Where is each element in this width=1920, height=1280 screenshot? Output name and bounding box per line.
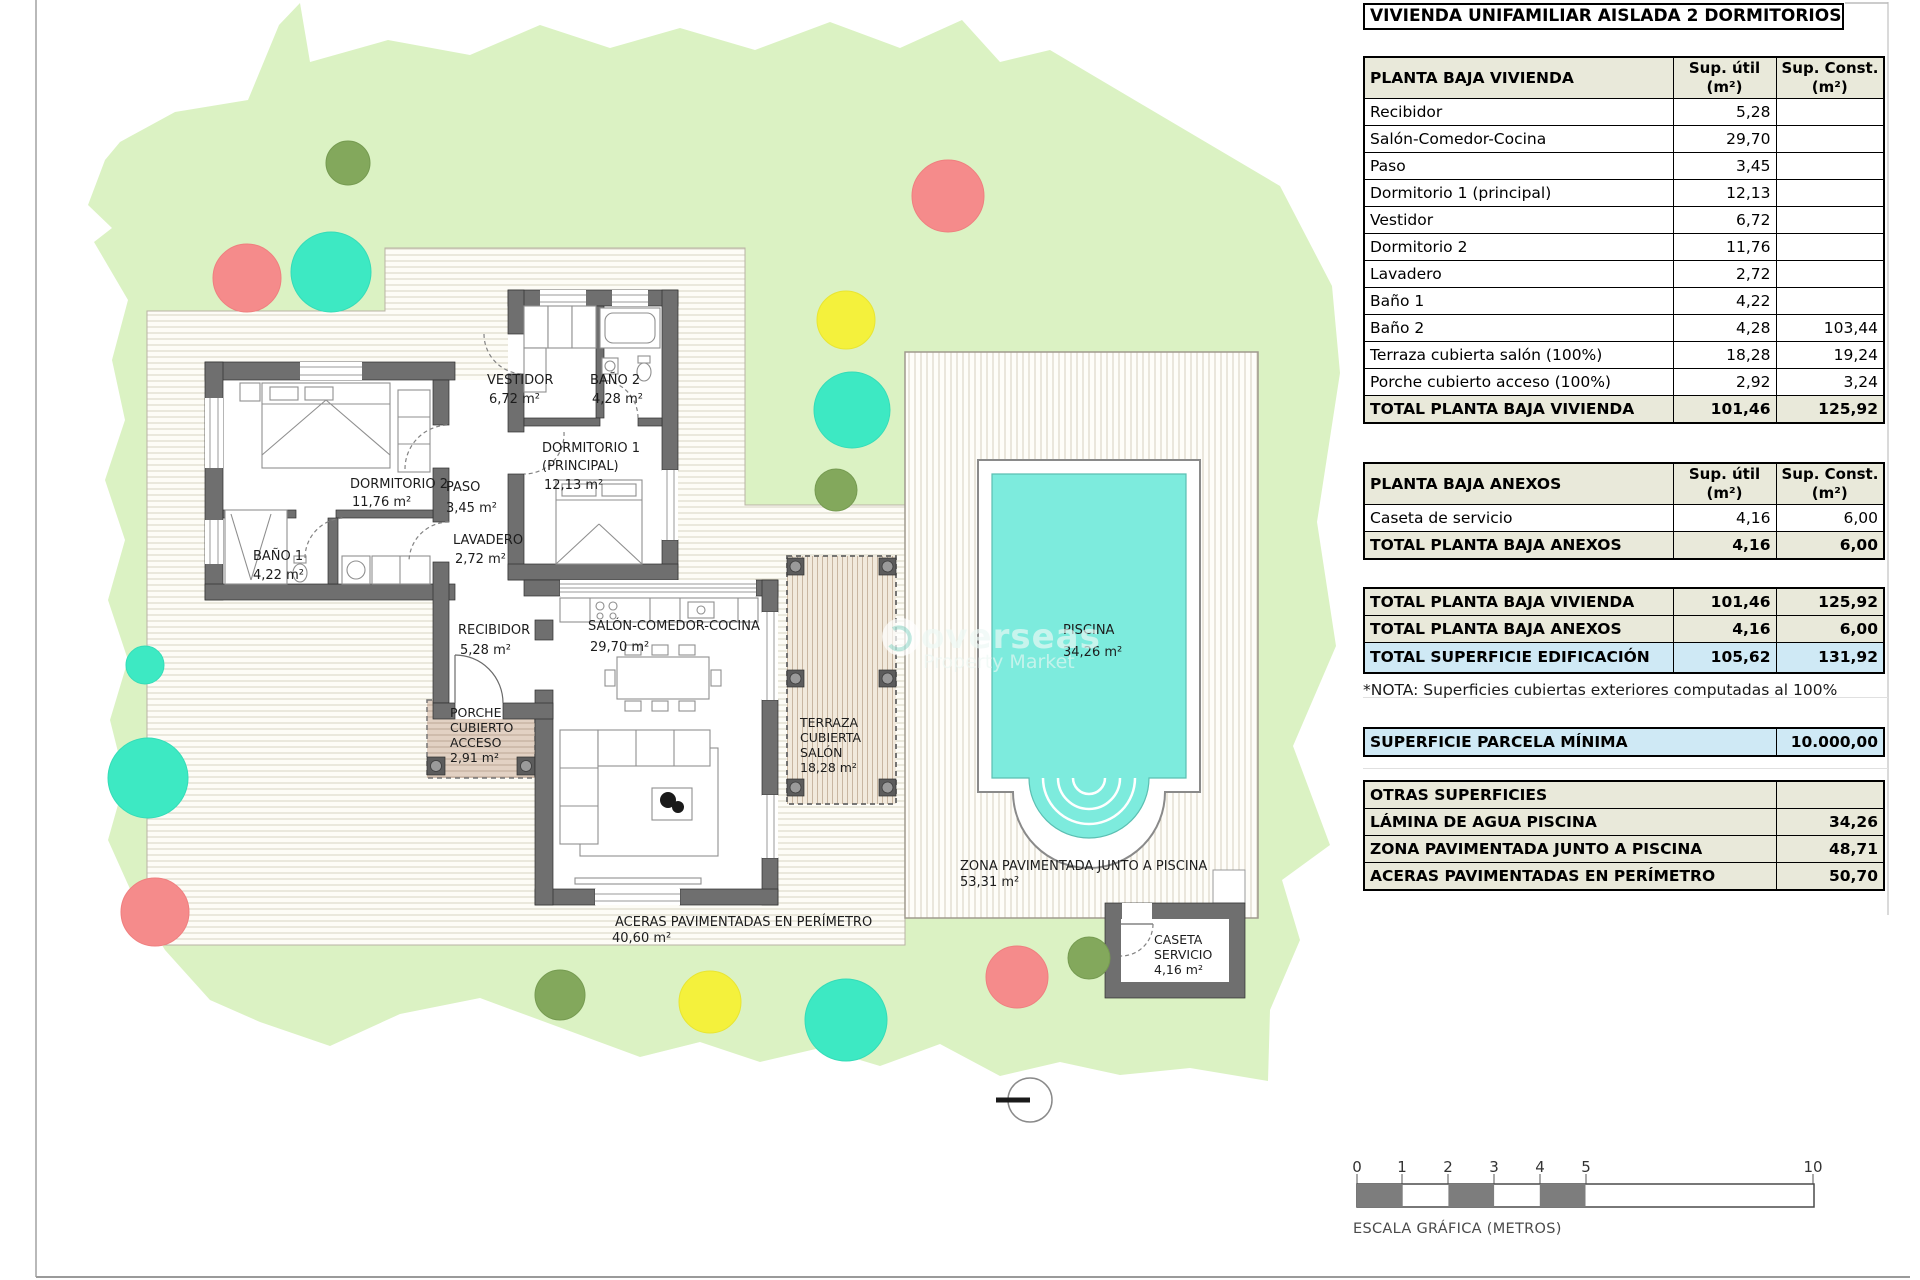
table-row: Lavadero2,72	[1364, 261, 1884, 288]
room-label: PASO	[446, 480, 480, 495]
table-row: LÁMINA DE AGUA PISCINA34,26	[1364, 809, 1884, 836]
site-label: CASETA	[1154, 932, 1203, 947]
tree-icon	[679, 971, 741, 1033]
table-row: Dormitorio 1 (principal)12,13	[1364, 180, 1884, 207]
col-header-const: Sup. Const.(m²)	[1776, 463, 1884, 505]
table-row: Caseta de servicio4,166,00	[1364, 505, 1884, 532]
room-label: DORMITORIO 1	[542, 441, 640, 456]
tree-icon	[121, 878, 189, 946]
scale-tick-label: 1	[1397, 1158, 1407, 1176]
tree-icon	[213, 244, 281, 312]
site-label: SERVICIO	[1154, 947, 1212, 962]
table-total-row: TOTAL PLANTA BAJA VIVIENDA101,46125,92	[1364, 396, 1884, 424]
room-area: 2,72 m²	[455, 552, 506, 567]
table-total-row: TOTAL PLANTA BAJA ANEXOS4,166,00	[1364, 616, 1884, 643]
col-header-util: Sup. útil(m²)	[1673, 57, 1776, 99]
room-label: (PRINCIPAL)	[542, 459, 619, 474]
watermark-text: Property Market	[923, 651, 1075, 673]
table-row: Paso3,45	[1364, 153, 1884, 180]
deck-gate	[1213, 870, 1245, 903]
site-label: ACCESO	[450, 735, 502, 750]
tree-icon	[912, 160, 984, 232]
table-row: ACERAS PAVIMENTADAS EN PERÍMETRO50,70	[1364, 863, 1884, 891]
table-header-row: OTRAS SUPERFICIES	[1364, 781, 1884, 809]
table-row: Recibidor5,28	[1364, 99, 1884, 126]
tree-icon	[326, 141, 370, 185]
otras-superficies-table: OTRAS SUPERFICIES LÁMINA DE AGUA PISCINA…	[1363, 780, 1885, 891]
site-label: CUBIERTO	[450, 720, 513, 735]
scale-tick-label: 2	[1443, 1158, 1453, 1176]
table-row: Baño 24,28103,44	[1364, 315, 1884, 342]
tree-icon	[814, 372, 890, 448]
table-row: Dormitorio 211,76	[1364, 234, 1884, 261]
table-total-row: TOTAL SUPERFICIE EDIFICACIÓN105,62131,92	[1364, 643, 1884, 673]
table-row: Salón-Comedor-Cocina29,70	[1364, 126, 1884, 153]
scale-bar: 0 1 2 3 4 5 10 ESCALA GRÁFICA (METROS)	[1352, 1158, 1822, 1237]
scale-tick-label: 0	[1352, 1158, 1362, 1176]
room-label: RECIBIDOR	[458, 623, 530, 638]
table-row: Vestidor6,72	[1364, 207, 1884, 234]
room-area: 11,76 m²	[352, 495, 411, 510]
table-row: ZONA PAVIMENTADA JUNTO A PISCINA48,71	[1364, 836, 1884, 863]
tree-icon	[817, 291, 875, 349]
room-area: 3,45 m²	[446, 501, 497, 516]
site-area: 53,31 m²	[960, 875, 1019, 890]
scale-tick-label: 5	[1581, 1158, 1591, 1176]
room-area: 4,28 m²	[592, 392, 643, 407]
table-total-row: TOTAL PLANTA BAJA VIVIENDA101,46125,92	[1364, 588, 1884, 616]
sheet-title: VIVIENDA UNIFAMILIAR AISLADA 2 DORMITORI…	[1363, 3, 1844, 30]
table-header: PLANTA BAJA VIVIENDA	[1364, 57, 1673, 99]
scale-tick-label: 4	[1535, 1158, 1545, 1176]
site-area: 18,28 m²	[800, 760, 857, 775]
site-area: 40,60 m²	[612, 931, 671, 946]
scale-tick-label: 10	[1803, 1158, 1822, 1176]
site-label: ACERAS PAVIMENTADAS EN PERÍMETRO	[615, 914, 872, 930]
site-area: 4,16 m²	[1154, 962, 1203, 977]
room-area: 5,28 m²	[460, 643, 511, 658]
tree-icon	[986, 946, 1048, 1008]
room-area: 6,72 m²	[489, 392, 540, 407]
tree-icon	[815, 469, 857, 511]
table-row: SUPERFICIE PARCELA MÍNIMA10.000,00	[1364, 728, 1884, 756]
site-label: TERRAZA	[799, 715, 859, 730]
floor-plan-sheet: DORMITORIO 2 11,76 m² BAÑO 1 4,22 m² LAV…	[0, 0, 1920, 1280]
nota-text: *NOTA: Superficies cubiertas exteriores …	[1363, 681, 1837, 699]
tree-icon	[291, 232, 371, 312]
parcela-minima-table: SUPERFICIE PARCELA MÍNIMA10.000,00	[1363, 727, 1885, 757]
site-label: CUBIERTA	[800, 730, 861, 745]
table-row: Baño 14,22	[1364, 288, 1884, 315]
totals-table: TOTAL PLANTA BAJA VIVIENDA101,46125,92 T…	[1363, 587, 1885, 674]
planta-baja-anexos-table: PLANTA BAJA ANEXOS Sup. útil(m²) Sup. Co…	[1363, 462, 1885, 560]
room-label: BAÑO 1	[253, 548, 303, 564]
site-label: PORCHE	[450, 705, 502, 720]
tree-icon	[535, 970, 585, 1020]
room-area: 4,22 m²	[253, 568, 304, 583]
table-row: Terraza cubierta salón (100%)18,2819,24	[1364, 342, 1884, 369]
planta-baja-vivienda-table: PLANTA BAJA VIVIENDA Sup. útil(m²) Sup. …	[1363, 56, 1885, 424]
tree-icon	[108, 738, 188, 818]
col-header-util: Sup. útil(m²)	[1673, 463, 1776, 505]
site-label: ZONA PAVIMENTADA JUNTO A PISCINA	[960, 859, 1207, 874]
tree-icon	[126, 646, 164, 684]
table-total-row: TOTAL PLANTA BAJA ANEXOS4,166,00	[1364, 532, 1884, 560]
col-header-const: Sup. Const.(m²)	[1776, 57, 1884, 99]
tree-icon	[805, 979, 887, 1061]
tree-icon	[1068, 937, 1110, 979]
room-label: DORMITORIO 2	[350, 477, 448, 492]
north-symbol-icon	[996, 1078, 1052, 1122]
site-area: 2,91 m²	[450, 750, 499, 765]
room-label: VESTIDOR	[487, 373, 553, 388]
site-label: SALÓN	[800, 745, 842, 760]
scale-tick-label: 3	[1489, 1158, 1499, 1176]
room-area: 12,13 m²	[544, 478, 603, 493]
room-label: LAVADERO	[453, 533, 523, 548]
scale-caption: ESCALA GRÁFICA (METROS)	[1353, 1220, 1562, 1237]
room-label: BAÑO 2	[590, 372, 640, 388]
table-row: Porche cubierto acceso (100%)2,923,24	[1364, 369, 1884, 396]
room-area: 29,70 m²	[590, 640, 649, 655]
room-label: SALÓN-COMEDOR-COCINA	[588, 618, 760, 634]
table-header: PLANTA BAJA ANEXOS	[1364, 463, 1673, 505]
